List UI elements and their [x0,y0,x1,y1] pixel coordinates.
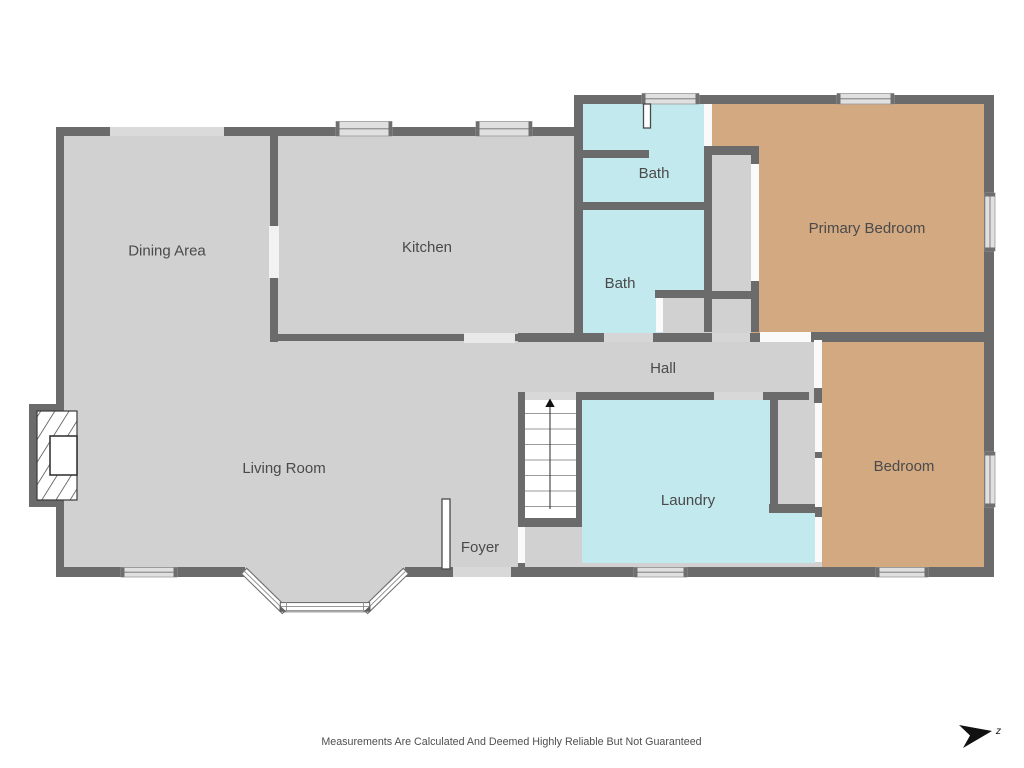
svg-text:Bedroom: Bedroom [874,458,935,475]
svg-text:Primary Bedroom: Primary Bedroom [809,220,926,237]
svg-text:Measurements Are Calculated An: Measurements Are Calculated And Deemed H… [321,736,701,748]
svg-text:Bath: Bath [605,275,636,292]
svg-text:Foyer: Foyer [461,539,499,556]
svg-text:z: z [995,725,1002,737]
svg-text:Hall: Hall [650,360,676,377]
svg-text:Living Room: Living Room [242,460,325,477]
svg-text:Kitchen: Kitchen [402,239,452,256]
svg-text:Bath: Bath [639,165,670,182]
svg-text:Dining Area: Dining Area [128,243,206,260]
svg-text:Laundry: Laundry [661,492,716,509]
